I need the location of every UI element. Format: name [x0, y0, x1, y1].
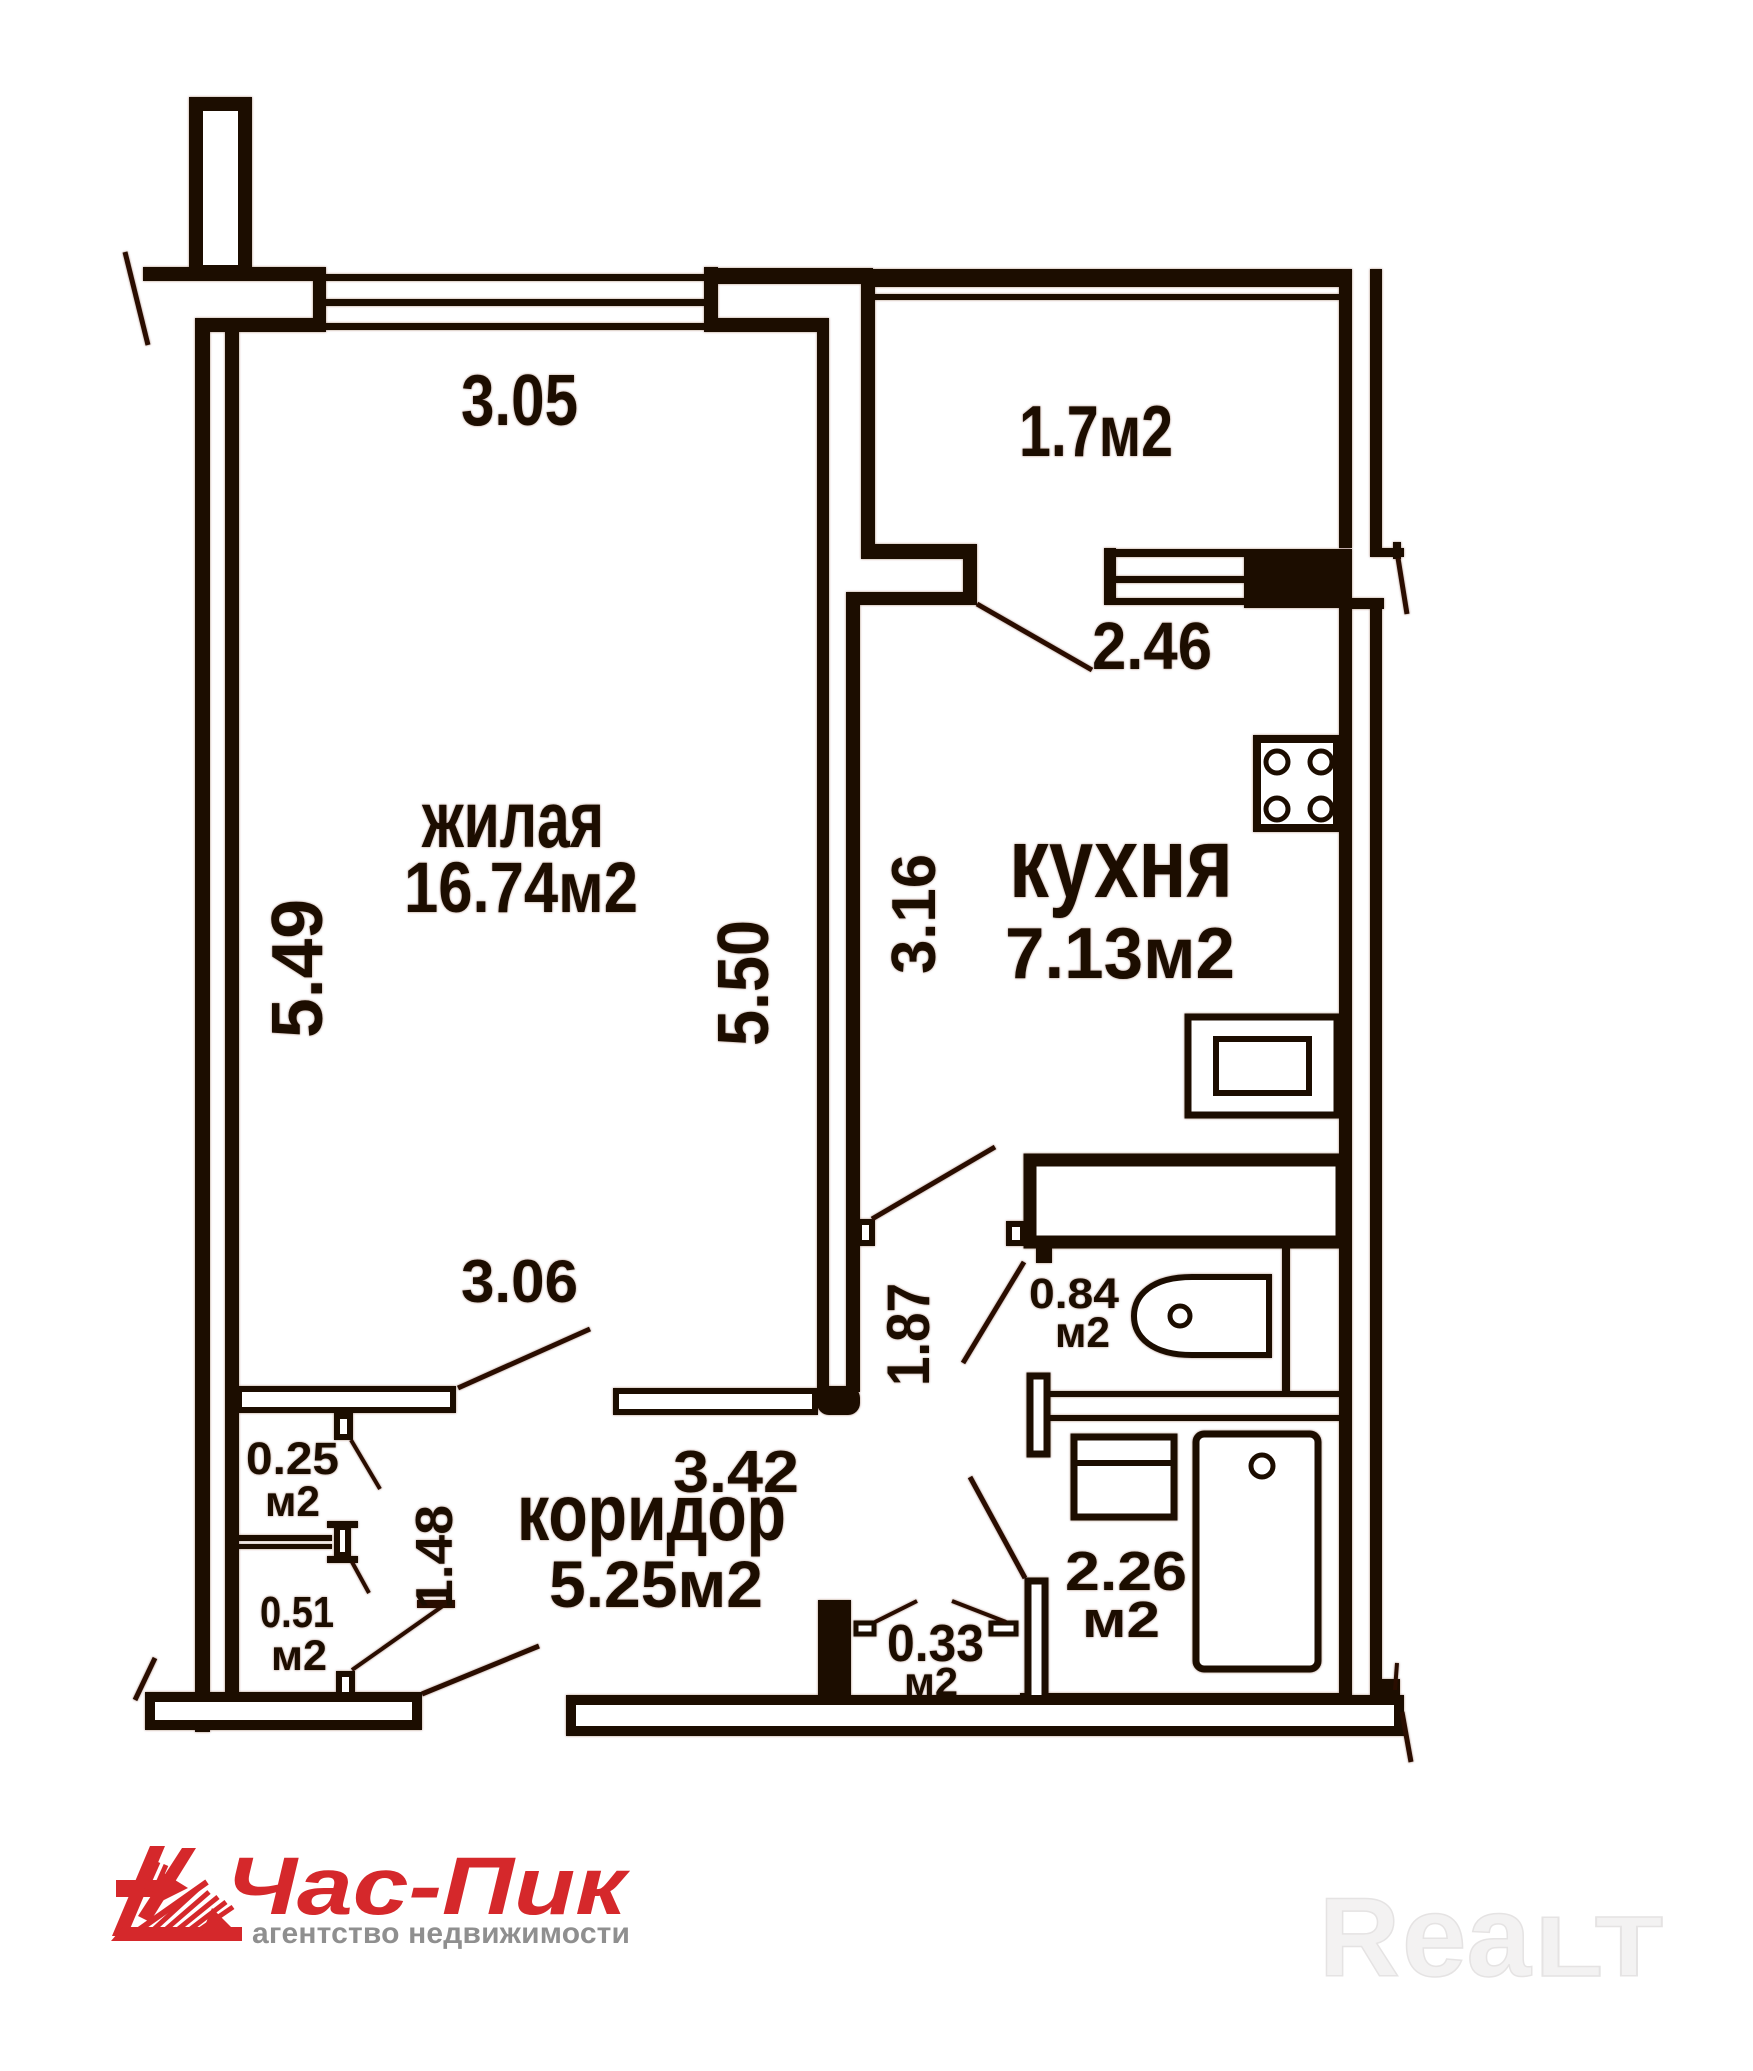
svg-text:кухня: кухня — [1009, 807, 1233, 919]
svg-text:ea: ea — [1402, 1871, 1533, 2001]
svg-text:0.25: 0.25 — [246, 1433, 339, 1484]
svg-text:3.05: 3.05 — [461, 361, 578, 441]
svg-text:м2: м2 — [265, 1478, 320, 1526]
svg-text:R: R — [1319, 1875, 1400, 2000]
svg-text:1.7м2: 1.7м2 — [1019, 392, 1173, 472]
svg-text:16.74м2: 16.74м2 — [404, 849, 638, 928]
svg-text:м2: м2 — [1055, 1309, 1110, 1357]
svg-text:2.46: 2.46 — [1092, 609, 1212, 684]
svg-text:1.48: 1.48 — [406, 1505, 464, 1609]
svg-text:0.51: 0.51 — [260, 1588, 334, 1637]
svg-text:м2: м2 — [271, 1632, 327, 1680]
svg-text:м2: м2 — [904, 1659, 958, 1705]
svg-text:7.13м2: 7.13м2 — [1005, 914, 1235, 994]
svg-text:3.16: 3.16 — [880, 854, 949, 974]
svg-text:5.49: 5.49 — [258, 899, 338, 1038]
svg-text:LT: LT — [1535, 1900, 1663, 1995]
svg-text:агентство недвижимости: агентство недвижимости — [252, 1917, 630, 1950]
svg-text:1.87: 1.87 — [875, 1283, 942, 1386]
svg-text:3.06: 3.06 — [461, 1248, 578, 1315]
svg-text:5.25м2: 5.25м2 — [549, 1547, 763, 1621]
svg-text:м2: м2 — [1082, 1591, 1160, 1648]
svg-text:коридор: коридор — [517, 1468, 786, 1557]
svg-text:5.50: 5.50 — [704, 920, 784, 1046]
